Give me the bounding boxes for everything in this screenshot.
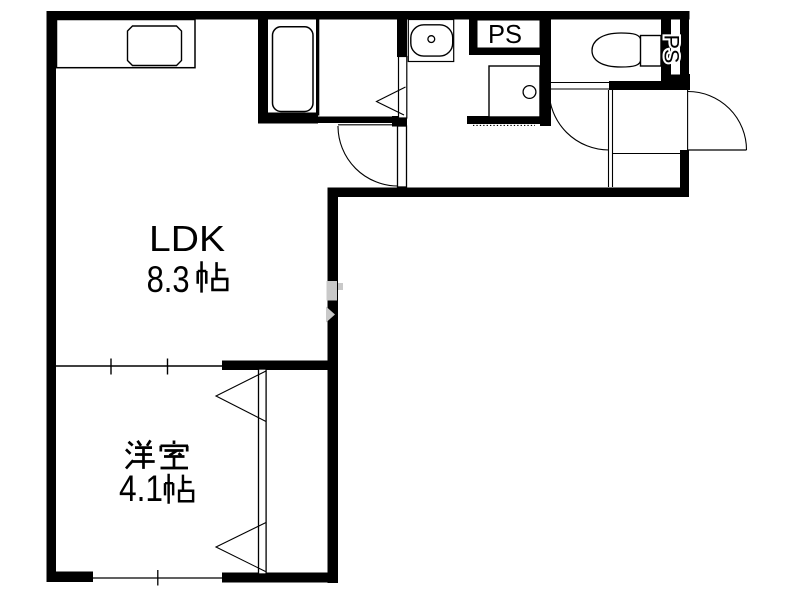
svg-text:PS: PS — [488, 21, 522, 49]
svg-text:PS: PS — [660, 35, 684, 64]
svg-text:8.3: 8.3 — [147, 259, 190, 300]
svg-text:LDK: LDK — [149, 218, 225, 259]
svg-text:4.1: 4.1 — [119, 468, 163, 509]
